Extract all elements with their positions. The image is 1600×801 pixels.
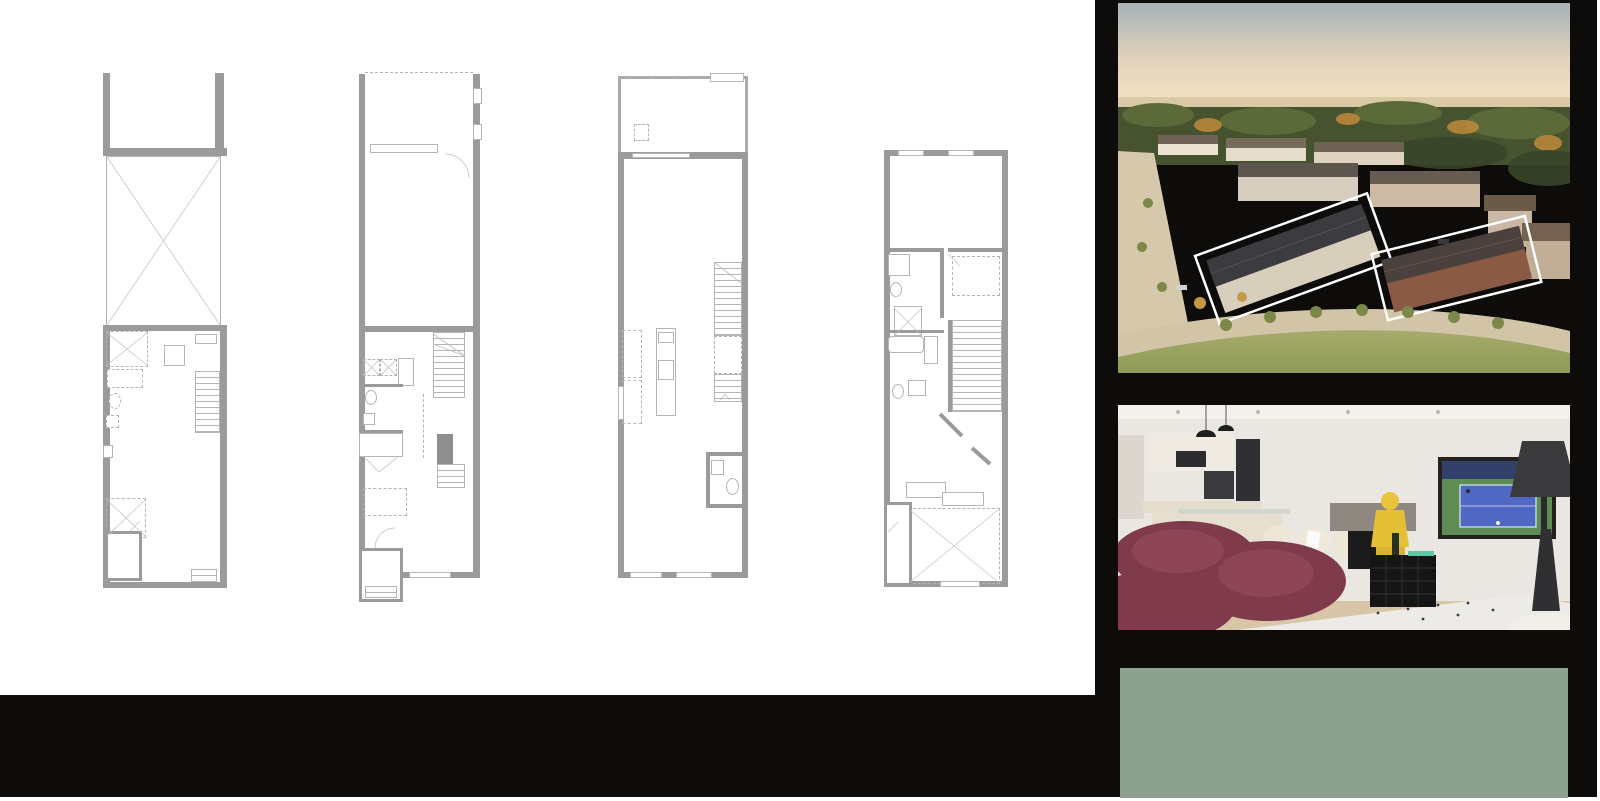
balcony: [884, 502, 912, 586]
linen-closet: [924, 336, 938, 364]
future-ac: [634, 124, 649, 141]
cold-room: [105, 531, 142, 581]
window: [676, 572, 712, 578]
toilet: [365, 390, 377, 405]
wall: [103, 582, 227, 588]
window: [940, 581, 980, 587]
window: [630, 572, 662, 578]
wall: [103, 148, 227, 156]
wall: [706, 452, 710, 508]
floorplan-third: [884, 150, 1008, 593]
stairs: [437, 464, 465, 488]
wall: [706, 504, 748, 508]
stairs: [714, 262, 742, 336]
linen-closet: [398, 358, 414, 386]
wall: [706, 452, 748, 456]
aerial-photo: [1118, 3, 1570, 373]
dashed-area: [106, 331, 148, 367]
kitchen-counter: [622, 380, 642, 424]
window: [618, 386, 624, 420]
lot-line: [365, 72, 473, 73]
bathtub: [888, 336, 924, 353]
window: [473, 88, 482, 104]
interior-photo: [1118, 405, 1570, 630]
dashed-steps: [363, 488, 407, 516]
washer: [363, 359, 380, 376]
unit-badge: [1120, 668, 1568, 798]
brochure-page: [0, 0, 1600, 801]
water-heater: [195, 334, 217, 344]
floorplan-basement: [103, 73, 227, 588]
window: [898, 150, 924, 156]
kitchen-counter: [622, 330, 642, 378]
sink: [363, 413, 375, 425]
bathtub-roughin: [107, 369, 143, 388]
closet: [906, 482, 946, 498]
dishwasher: [658, 332, 674, 343]
floorplan-second: [618, 70, 748, 580]
wall: [359, 384, 403, 387]
island-sink: [658, 360, 674, 380]
sliding-door: [632, 153, 690, 158]
stairs: [952, 320, 1002, 412]
floorplan-first: [359, 72, 480, 578]
wall: [884, 248, 944, 252]
pwd-toilet: [726, 478, 739, 495]
wall: [1002, 150, 1008, 587]
ensuite-shower: [888, 254, 910, 276]
dryer: [380, 359, 397, 376]
vanity: [908, 380, 926, 396]
toilet-roughin: [109, 393, 121, 409]
unexcavated-area: [106, 156, 221, 326]
window: [473, 124, 482, 140]
stairs: [714, 374, 742, 402]
wall: [359, 74, 365, 328]
stairs-open-below: [714, 336, 742, 374]
window-well: [103, 445, 113, 458]
stairs: [433, 332, 465, 398]
wall: [473, 326, 480, 578]
wall: [884, 330, 944, 333]
privacy-screen: [618, 76, 621, 155]
sink-roughin: [106, 415, 119, 428]
closet: [359, 433, 403, 457]
opt-wall: [423, 394, 424, 458]
walkin-closet: [952, 256, 1000, 296]
porch-steps: [365, 586, 397, 598]
wall: [742, 152, 748, 578]
wall: [948, 248, 1008, 252]
wall: [473, 74, 480, 328]
window: [409, 572, 451, 578]
wall: [215, 73, 224, 153]
entry-steps: [191, 569, 217, 582]
raised-ceiling: [908, 508, 1000, 584]
furnace: [164, 345, 185, 366]
low-wall: [710, 73, 744, 82]
wall: [940, 248, 944, 318]
stair-landing: [437, 434, 453, 464]
privacy-screen: [745, 76, 748, 155]
wall: [103, 73, 110, 153]
closet: [942, 492, 984, 506]
stairs: [195, 371, 220, 433]
window: [948, 150, 974, 156]
pwd-sink: [711, 460, 724, 475]
garage-door: [370, 144, 438, 153]
wall: [220, 325, 227, 588]
ensuite-toilet: [890, 282, 902, 297]
toilet: [892, 384, 904, 399]
footer-bar: [0, 695, 1095, 797]
